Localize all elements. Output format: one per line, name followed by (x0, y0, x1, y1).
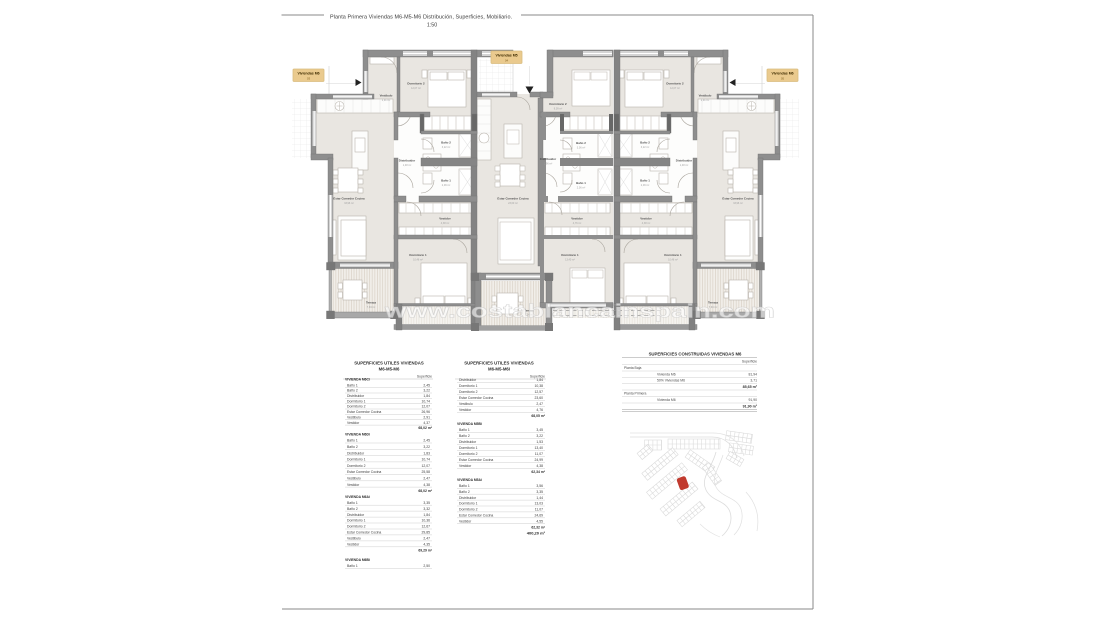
svg-text:Dormitorio 1: Dormitorio 1 (347, 399, 366, 403)
svg-text:Baño 2: Baño 2 (459, 490, 470, 494)
svg-text:Estar Comedor Cocina: Estar Comedor Cocina (333, 197, 365, 201)
svg-text:3,71: 3,71 (750, 379, 757, 383)
svg-text:VIVIENDA M6Bi: VIVIENDA M6Bi (345, 558, 370, 562)
svg-text:24,99: 24,99 (535, 458, 544, 462)
svg-text:3,22: 3,22 (536, 434, 543, 438)
svg-text:2,47: 2,47 (423, 537, 430, 541)
svg-text:Distribuidor: Distribuidor (459, 440, 477, 444)
svg-text:7,94 m²: 7,94 m² (367, 306, 376, 309)
svg-text:Distribuidor: Distribuidor (459, 378, 477, 382)
svg-text:Dormitorio 2: Dormitorio 2 (459, 452, 478, 456)
svg-text:Baño 1: Baño 1 (441, 179, 451, 183)
svg-text:Distribuidor: Distribuidor (347, 513, 365, 517)
svg-text:VIVIENDA M5Ai: VIVIENDA M5Ai (457, 478, 482, 482)
svg-text:Estar Comedor Cocina: Estar Comedor Cocina (459, 396, 493, 400)
svg-text:Vestibulo: Vestibulo (347, 537, 361, 541)
svg-text:Estar Comedor Cocina: Estar Comedor Cocina (347, 531, 381, 535)
svg-text:62,34 m²: 62,34 m² (531, 470, 545, 474)
svg-text:10,74: 10,74 (422, 458, 431, 462)
svg-text:Distribuidor: Distribuidor (399, 159, 416, 163)
svg-text:10,46 m²: 10,46 m² (668, 259, 678, 262)
svg-text:Viviendas M6: Viviendas M6 (297, 72, 319, 76)
svg-text:1,48 m²: 1,48 m² (403, 164, 412, 167)
svg-text:2,09 m²: 2,09 m² (442, 184, 451, 187)
svg-text:3,56: 3,56 (536, 484, 543, 488)
svg-text:4,38: 4,38 (423, 483, 430, 487)
svg-text:4,37: 4,37 (423, 421, 430, 425)
svg-text:Dormitorio 1: Dormitorio 1 (459, 502, 478, 506)
svg-text:Baño 2: Baño 2 (347, 389, 358, 393)
svg-text:Planta Baja: Planta Baja (624, 366, 641, 370)
svg-text:91,90 m²: 91,90 m² (743, 405, 758, 409)
svg-text:23,60: 23,60 (535, 396, 544, 400)
svg-text:29,85: 29,85 (422, 531, 431, 535)
svg-text:11,07: 11,07 (535, 452, 543, 456)
svg-text:33,96 m²: 33,96 m² (344, 202, 354, 205)
svg-text:Estar Comedor Cocina: Estar Comedor Cocina (722, 197, 754, 201)
svg-text:81,94: 81,94 (749, 373, 758, 377)
svg-text:Dormitorio 2: Dormitorio 2 (459, 508, 478, 512)
svg-text:03: 03 (307, 77, 311, 81)
svg-text:Baño 2: Baño 2 (459, 434, 470, 438)
svg-text:2,47: 2,47 (536, 402, 543, 406)
svg-text:Vivienda M6: Vivienda M6 (657, 373, 676, 377)
svg-text:Vestibulo: Vestibulo (347, 415, 361, 419)
svg-text:12,07 m²: 12,07 m² (670, 87, 680, 90)
svg-text:VIVIENDA M6Ci: VIVIENDA M6Ci (345, 378, 370, 382)
svg-text:2,06 m²: 2,06 m² (577, 187, 586, 190)
svg-text:Baño 2: Baño 2 (576, 141, 586, 145)
svg-text:4,76 m²: 4,76 m² (573, 222, 582, 225)
svg-text:91,90: 91,90 (749, 398, 758, 402)
svg-text:Baño 2: Baño 2 (640, 141, 650, 145)
svg-text:3,22: 3,22 (423, 389, 430, 393)
svg-text:25,58: 25,58 (422, 470, 431, 474)
svg-text:11,07: 11,07 (535, 508, 543, 512)
svg-text:SUPERFICIES CONSTRUIDAS VIVIEN: SUPERFICIES CONSTRUIDAS VIVIENDAS M6 (649, 352, 742, 357)
svg-text:Dormitorio 2: Dormitorio 2 (347, 464, 366, 468)
svg-text:Superficie: Superficie (742, 360, 757, 364)
svg-text:12,07: 12,07 (422, 405, 431, 409)
svg-text:VIVIENDA M6Ai: VIVIENDA M6Ai (345, 495, 370, 499)
svg-text:Dormitorio 1: Dormitorio 1 (347, 519, 366, 523)
svg-text:1,53: 1,53 (536, 440, 543, 444)
svg-text:Terraza: Terraza (366, 301, 376, 305)
svg-text:Dormitorio 2: Dormitorio 2 (549, 102, 567, 106)
svg-text:Baño 2: Baño 2 (441, 141, 451, 145)
svg-text:Vestidor: Vestidor (347, 543, 360, 547)
svg-text:Distribuidor: Distribuidor (347, 394, 365, 398)
svg-text:3,35: 3,35 (423, 501, 430, 505)
svg-text:Distribuidor: Distribuidor (676, 159, 693, 163)
svg-text:3,32: 3,32 (423, 507, 430, 511)
svg-text:Planta Primera Viviendas M6-M5: Planta Primera Viviendas M6-M5-M6 Distri… (330, 15, 513, 21)
svg-text:9,09 m²: 9,09 m² (554, 108, 563, 111)
svg-text:Dormitorio 1: Dormitorio 1 (347, 458, 366, 462)
svg-text:Dormitorio 2: Dormitorio 2 (459, 390, 478, 394)
svg-text:Baño 1: Baño 1 (347, 564, 358, 568)
svg-text:Baño 1: Baño 1 (640, 179, 650, 183)
svg-text:SUPERFICIES UTILES VIVIENDAS: SUPERFICIES UTILES VIVIENDAS (354, 361, 424, 366)
svg-text:Dormitorio 1: Dormitorio 1 (409, 253, 427, 257)
svg-text:04: 04 (505, 59, 509, 63)
svg-text:10,36: 10,36 (422, 519, 431, 523)
svg-text:Vestidor: Vestidor (571, 217, 583, 221)
svg-text:3,06 m²: 3,06 m² (577, 147, 586, 150)
svg-text:Viviendas M6: Viviendas M6 (771, 72, 793, 76)
svg-text:68,02 m²: 68,02 m² (418, 489, 432, 493)
svg-text:10,74: 10,74 (422, 399, 431, 403)
svg-text:69,29 m²: 69,29 m² (418, 549, 432, 553)
svg-text:2,50: 2,50 (423, 564, 430, 568)
svg-text:26,96: 26,96 (422, 410, 431, 414)
svg-text:3,35: 3,35 (536, 490, 543, 494)
svg-text:1:50: 1:50 (427, 23, 437, 29)
svg-text:Dormitorio 2: Dormitorio 2 (666, 82, 684, 86)
svg-text:12,57: 12,57 (535, 390, 544, 394)
svg-text:Vestidor: Vestidor (459, 519, 472, 523)
svg-text:4,38: 4,38 (536, 464, 543, 468)
svg-text:Baño 1: Baño 1 (347, 439, 358, 443)
svg-text:SUPERFICIES UTILES VIVIENDAS: SUPERFICIES UTILES VIVIENDAS (464, 361, 534, 366)
svg-text:Dormitorio 2: Dormitorio 2 (407, 82, 425, 86)
svg-text:13,40 m²: 13,40 m² (565, 259, 575, 262)
svg-text:Vestidor: Vestidor (347, 421, 360, 425)
svg-text:Estar Comedor Cocina: Estar Comedor Cocina (347, 410, 381, 414)
svg-text:23,60 m²: 23,60 m² (508, 202, 518, 205)
svg-text:Baño 1: Baño 1 (347, 383, 358, 387)
svg-text:Vestibulo: Vestibulo (699, 94, 712, 98)
svg-text:2,45: 2,45 (423, 383, 430, 387)
svg-text:2,09 m²: 2,09 m² (641, 184, 650, 187)
svg-text:1,48 m²: 1,48 m² (680, 164, 689, 167)
svg-text:Dormitorio 2: Dormitorio 2 (347, 525, 366, 529)
svg-text:1,96 m²: 1,96 m² (544, 163, 553, 166)
svg-text:Superficie: Superficie (417, 375, 432, 379)
svg-text:Dormitorio 2: Dormitorio 2 (347, 405, 366, 409)
svg-text:Estar Comedor Cocina: Estar Comedor Cocina (459, 458, 493, 462)
svg-text:3,22 m²: 3,22 m² (641, 146, 650, 149)
svg-text:Distribuidor: Distribuidor (540, 157, 557, 161)
svg-text:Estar Comedor Cocina: Estar Comedor Cocina (347, 470, 381, 474)
svg-text:Vestibulo: Vestibulo (347, 477, 361, 481)
svg-text:www.costablancainspain.com: www.costablancainspain.com (384, 302, 775, 323)
svg-text:2,91 m²: 2,91 m² (382, 99, 391, 102)
svg-text:12,07 m²: 12,07 m² (411, 87, 421, 90)
svg-text:Baño 2: Baño 2 (347, 445, 358, 449)
svg-text:Baño 1: Baño 1 (459, 428, 470, 432)
svg-text:Dormitorio 1: Dormitorio 1 (561, 253, 579, 257)
svg-text:1,44: 1,44 (536, 496, 543, 500)
svg-text:68,05 m²: 68,05 m² (531, 414, 545, 418)
svg-text:24,69: 24,69 (535, 514, 544, 518)
svg-text:Viviendas M5: Viviendas M5 (495, 54, 517, 58)
svg-text:3,22: 3,22 (423, 445, 430, 449)
svg-text:50% Viviendas M6: 50% Viviendas M6 (657, 379, 685, 383)
svg-text:Dormitorio 1: Dormitorio 1 (664, 253, 682, 257)
svg-text:1,84: 1,84 (423, 394, 430, 398)
svg-text:Estar Comedor Cocina: Estar Comedor Cocina (497, 197, 529, 201)
svg-text:4,35: 4,35 (423, 543, 430, 547)
svg-text:Baño 1: Baño 1 (576, 181, 586, 185)
svg-text:12,67: 12,67 (422, 525, 431, 529)
svg-text:Vestidor: Vestidor (347, 483, 360, 487)
svg-text:12,07: 12,07 (422, 464, 431, 468)
svg-text:Planta Primera: Planta Primera (624, 392, 647, 396)
svg-text:M6-M5-M6: M6-M5-M6 (379, 367, 400, 372)
svg-text:10,38: 10,38 (535, 384, 544, 388)
svg-text:Baño 1: Baño 1 (459, 484, 470, 488)
svg-text:Dormitorio 1: Dormitorio 1 (459, 446, 478, 450)
svg-text:13,03: 13,03 (535, 502, 544, 506)
svg-text:3,45: 3,45 (536, 428, 543, 432)
svg-text:2,91 m²: 2,91 m² (701, 99, 710, 102)
svg-text:Vestidor: Vestidor (439, 217, 451, 221)
svg-text:10,46 m²: 10,46 m² (413, 259, 423, 262)
svg-text:1,83: 1,83 (423, 451, 430, 455)
svg-text:68,02 m²: 68,02 m² (418, 426, 432, 430)
svg-text:2,45: 2,45 (423, 439, 430, 443)
svg-text:4,76: 4,76 (536, 408, 543, 412)
svg-text:M6-M5-M6i: M6-M5-M6i (488, 367, 510, 372)
svg-text:Vestidor: Vestidor (640, 217, 652, 221)
svg-text:3,22 m²: 3,22 m² (442, 146, 451, 149)
svg-text:4,38 m²: 4,38 m² (441, 222, 450, 225)
svg-text:1,84: 1,84 (423, 513, 430, 517)
svg-text:2,91: 2,91 (423, 415, 430, 419)
svg-text:4,55: 4,55 (536, 519, 543, 523)
svg-text:Estar Comedor Cocina: Estar Comedor Cocina (459, 514, 493, 518)
svg-text:Vestibulo: Vestibulo (459, 402, 473, 406)
svg-text:Baño 1: Baño 1 (347, 501, 358, 505)
svg-text:Baño 2: Baño 2 (347, 507, 358, 511)
svg-text:13,40: 13,40 (535, 446, 544, 450)
svg-text:VIVIENDA M6Di: VIVIENDA M6Di (345, 432, 370, 436)
svg-text:4,38 m²: 4,38 m² (642, 222, 651, 225)
svg-text:1,84: 1,84 (536, 378, 543, 382)
svg-text:Vestidor: Vestidor (459, 408, 472, 412)
svg-text:Distribuidor: Distribuidor (459, 496, 477, 500)
svg-text:2,47: 2,47 (423, 477, 430, 481)
svg-text:Vestibulo: Vestibulo (380, 94, 393, 98)
svg-text:Distribuidor: Distribuidor (347, 451, 365, 455)
svg-text:33,96 m²: 33,96 m² (733, 202, 743, 205)
svg-text:05: 05 (781, 77, 785, 81)
svg-text:Dormitorio 1: Dormitorio 1 (459, 384, 478, 388)
svg-text:Vestidor: Vestidor (459, 464, 472, 468)
svg-text:62,32 m²: 62,32 m² (531, 525, 545, 529)
svg-text:Vivienda M6: Vivienda M6 (657, 398, 676, 402)
svg-text:85,65 m²: 85,65 m² (743, 385, 758, 389)
svg-text:VIVIENDA M5Bi: VIVIENDA M5Bi (457, 422, 482, 426)
svg-text:400,20 m²: 400,20 m² (527, 530, 546, 535)
